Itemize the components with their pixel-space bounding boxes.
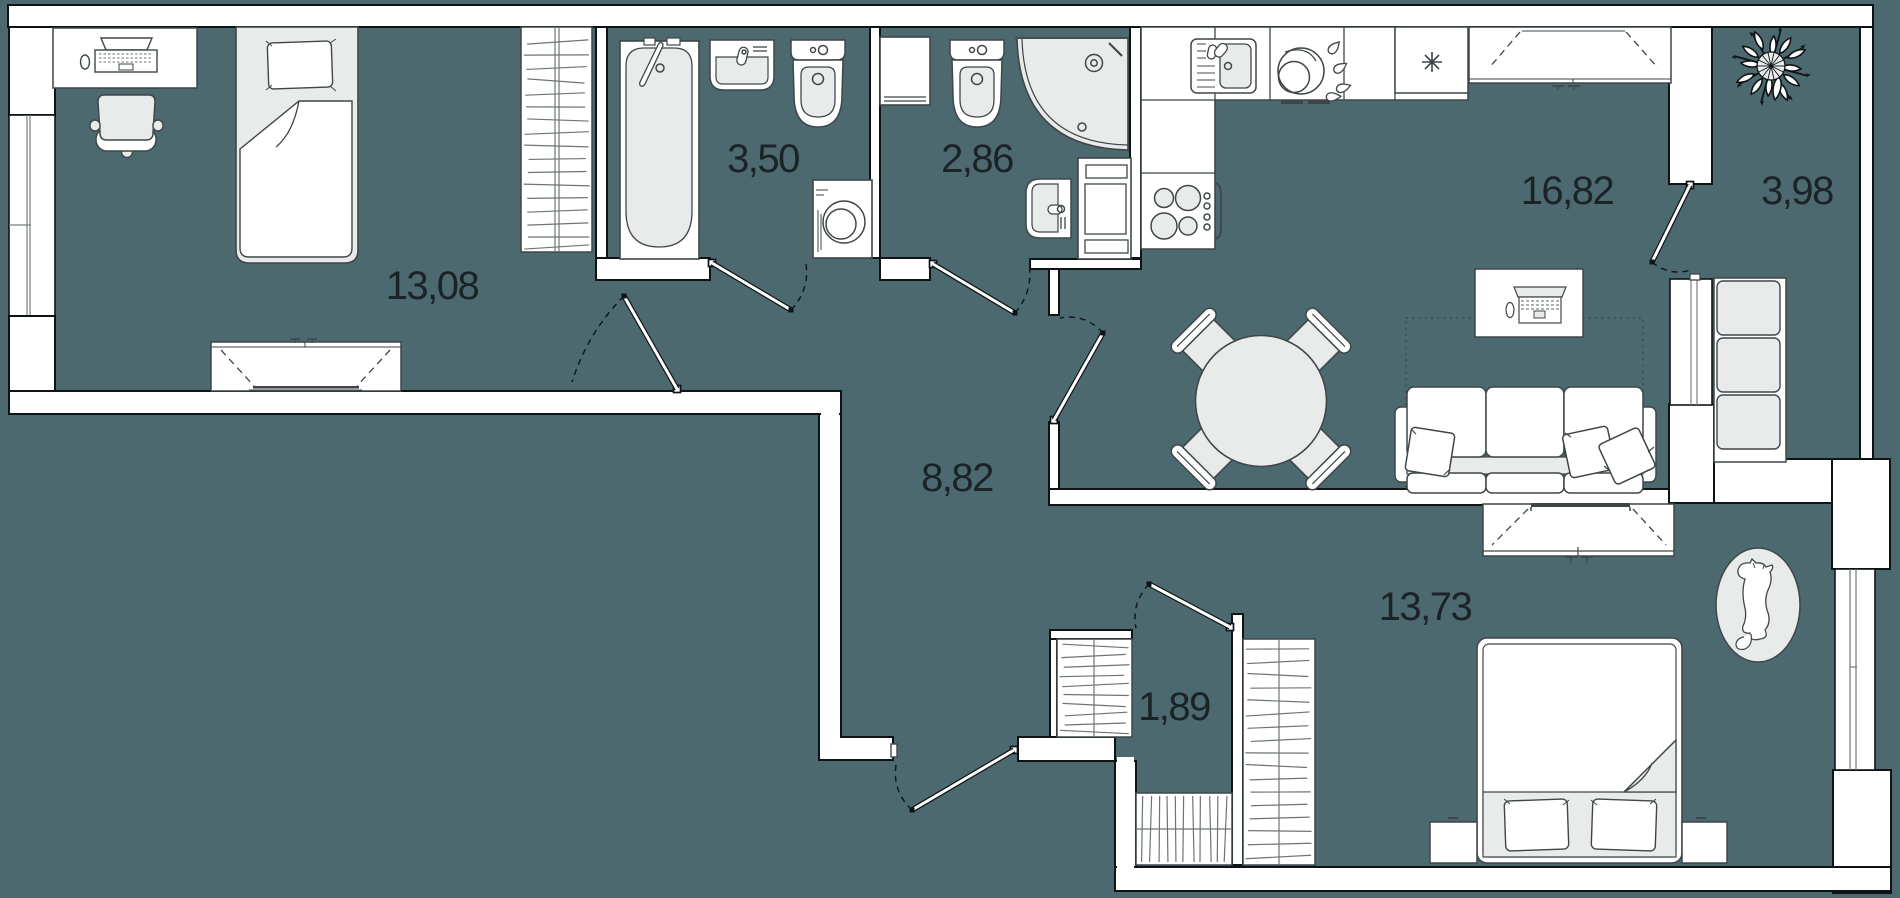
svg-text:13,08: 13,08: [386, 264, 479, 308]
svg-text:3,98: 3,98: [1761, 169, 1833, 213]
svg-text:1,89: 1,89: [1138, 685, 1210, 729]
svg-text:2,86: 2,86: [941, 137, 1013, 181]
svg-text:8,82: 8,82: [921, 456, 993, 500]
svg-text:13,73: 13,73: [1379, 585, 1472, 629]
svg-text:3,50: 3,50: [727, 137, 799, 181]
svg-text:16,82: 16,82: [1521, 169, 1614, 213]
